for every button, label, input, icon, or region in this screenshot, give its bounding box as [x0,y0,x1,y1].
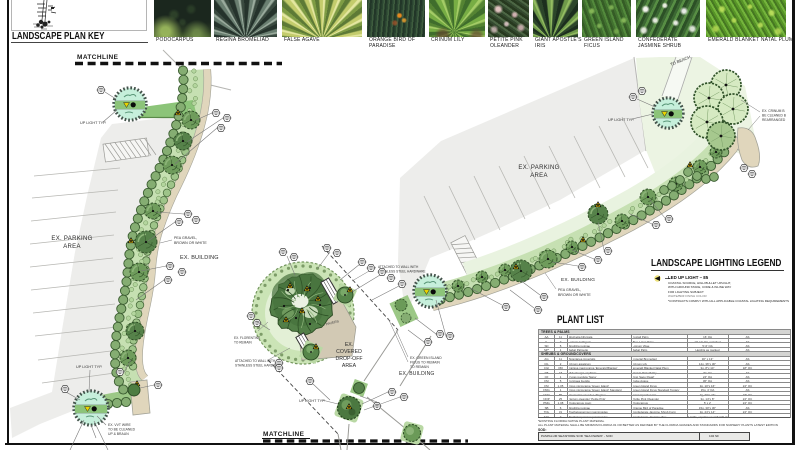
svg-text:UP LIGHT TYP.: UP LIGHT TYP. [76,365,102,369]
svg-text:UP LIGHT TYP.: UP LIGHT TYP. [80,121,106,125]
svg-text:EX.: EX. [345,342,353,348]
svg-text:ATTACHED TO WALL WITH: ATTACHED TO WALL WITH [235,359,276,363]
svg-text:UP & BRAUN: UP & BRAUN [108,432,129,436]
svg-text:AREA: AREA [530,173,548,179]
svg-text:REARRANGED: REARRANGED [762,118,786,122]
svg-text:UP LIGHT TYP.: UP LIGHT TYP. [299,399,325,403]
svg-text:TO REMAIN: TO REMAIN [410,365,429,369]
svg-text:UP LIGHT TYP.: UP LIGHT TYP. [608,118,634,122]
svg-text:AREA: AREA [63,244,81,250]
svg-text:EX. BUILDING: EX. BUILDING [399,371,434,377]
svg-text:TO REMAIN: TO REMAIN [234,341,252,345]
svg-text:TO BE CLEANED: TO BE CLEANED [108,428,136,432]
svg-text:PEA GRAVEL,: PEA GRAVEL, [558,288,581,292]
svg-text:BROWN OR WHITE: BROWN OR WHITE [558,293,591,297]
svg-text:AREA: AREA [342,363,357,369]
svg-text:EX. BUILDING: EX. BUILDING [561,277,595,283]
svg-text:EX. VVT WIRE: EX. VVT WIRE [108,423,131,427]
svg-text:BE CLEANED B: BE CLEANED B [762,114,787,118]
svg-text:DROP-OFF: DROP-OFF [335,356,362,362]
svg-text:EX. BUILDING: EX. BUILDING [180,255,219,261]
svg-text:FICUS TO REMAIN: FICUS TO REMAIN [410,361,440,365]
svg-text:COVERED: COVERED [336,349,362,355]
svg-text:EX. GREEN ISLAND: EX. GREEN ISLAND [410,356,442,360]
svg-text:MATCHLINE: MATCHLINE [77,54,119,61]
svg-text:PEA GRAVEL,: PEA GRAVEL, [174,236,197,240]
svg-text:MATCHLINE: MATCHLINE [263,431,305,438]
svg-text:BROWN OR WHITE: BROWN OR WHITE [174,241,207,245]
svg-text:EX. FLORENTINE: EX. FLORENTINE [234,336,260,340]
svg-text:EX. CRINUM B: EX. CRINUM B [762,109,785,113]
svg-text:EX. PARKING: EX. PARKING [51,236,92,242]
svg-text:EX. PARKING: EX. PARKING [518,165,559,171]
